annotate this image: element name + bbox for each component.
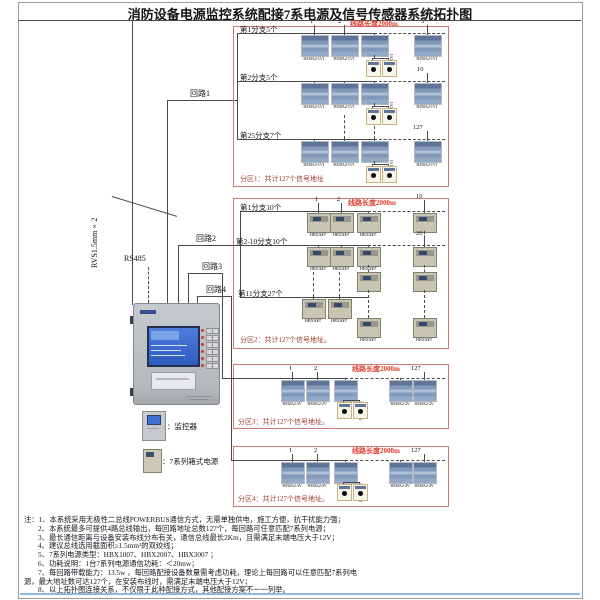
indicator-led	[201, 350, 204, 353]
device-module	[413, 272, 437, 292]
zone-trunk-line	[237, 33, 238, 139]
sensor-module	[353, 484, 368, 501]
device-module-label: HJ30A2-1V1	[297, 56, 331, 61]
device-module-label: HBX3007	[351, 232, 385, 237]
indicator-led	[201, 364, 204, 367]
branch-bus-dashed	[345, 460, 445, 461]
device-module	[357, 318, 381, 338]
device-module	[330, 213, 354, 233]
continuation-dashed-line	[313, 272, 314, 297]
loop1-wire-v	[167, 100, 168, 303]
continuation-dashed-line	[424, 231, 425, 247]
loop3-wire-v1	[188, 273, 189, 303]
device-module	[413, 247, 437, 267]
device-module	[307, 247, 331, 267]
loop3-wire-h1	[188, 273, 222, 274]
address-tick	[318, 203, 319, 211]
sensor-module	[382, 60, 397, 77]
title-underline	[18, 20, 581, 21]
branch-bus-dashed	[368, 245, 445, 246]
branch-bus-dashed	[374, 81, 445, 82]
device-module	[302, 299, 326, 319]
loop4-wire-h1	[197, 296, 231, 297]
device-module	[414, 141, 442, 163]
legend-monitor-screen	[147, 415, 161, 425]
address-tick	[424, 200, 425, 211]
printer-slot	[156, 378, 189, 380]
loop3-label: 回路3	[202, 261, 222, 272]
device-module	[414, 83, 442, 105]
keypad-button	[212, 342, 219, 348]
loop4-wire-v2	[231, 296, 232, 460]
device-module-label: HJ30A2-1V1	[410, 104, 444, 109]
sensor-module	[353, 402, 368, 419]
continuation-dashed-line	[424, 265, 425, 272]
device-module	[328, 299, 352, 319]
device-module-label: HJ30A2-1V1	[327, 104, 361, 109]
device-module	[413, 462, 437, 484]
sensor-branch-line	[372, 58, 389, 59]
device-module-label: HJ30A2-1V1	[297, 104, 331, 109]
sensor-module	[382, 108, 397, 125]
address-tick	[427, 131, 428, 139]
loop1-wire-h	[167, 100, 237, 101]
sensor-branch-line	[343, 482, 360, 483]
indicator-led	[201, 329, 204, 332]
rs485-label: RS485	[124, 254, 146, 263]
address-tick	[427, 25, 428, 33]
device-module	[301, 35, 329, 57]
line-length-label: 线路长度2000m	[352, 446, 400, 456]
device-module	[357, 247, 381, 267]
continuation-dashed-line	[368, 265, 369, 272]
lcd-text-line	[151, 350, 181, 351]
address-number: 1	[289, 447, 292, 454]
branch-label: 第2-10分支10个	[236, 236, 287, 247]
continuation-dashed-line	[368, 290, 369, 318]
zone-trunk-line	[240, 211, 241, 297]
branch-bus-dashed	[374, 139, 445, 140]
address-number: 1	[315, 196, 318, 203]
nameplate-text	[186, 396, 212, 397]
lcd-text-line	[151, 345, 187, 346]
device-module-label: HJ30A2-1V1	[410, 56, 444, 61]
address-number: 10	[417, 66, 424, 73]
rs485-wire	[148, 267, 149, 303]
branch-bus-dashed	[374, 33, 445, 34]
device-module	[361, 83, 389, 105]
address-number: 10	[416, 193, 423, 200]
zone-footer-note: 分区3：共计127个信号地址。	[238, 417, 329, 427]
device-module	[306, 380, 330, 402]
device-module	[334, 380, 358, 402]
keypad-button	[212, 349, 219, 355]
bottom-rule	[20, 593, 580, 595]
notes-section: 注：1、本系统采用无极性二总线POWERBUS通信方式，无需单独供电，施工方便，…	[24, 516, 580, 595]
continuation-dashed-line	[344, 115, 345, 139]
device-module-label: HBX3007	[322, 318, 356, 323]
device-module	[281, 462, 305, 484]
address-number: 1	[289, 365, 292, 372]
address-number: 2	[337, 196, 340, 203]
sensor-module	[366, 166, 381, 183]
device-module	[301, 141, 329, 163]
continuation-dashed-line	[339, 272, 340, 297]
address-number: 20	[416, 230, 423, 237]
sensor-module	[382, 166, 397, 183]
sensor-module	[337, 484, 352, 501]
device-module-label: HJ30A2-2V	[407, 401, 441, 406]
device-module	[414, 35, 442, 57]
legend-power-label: ：7系列箱式电源	[162, 456, 218, 467]
line-length-label: 线路长度2000m	[352, 364, 400, 374]
sensor-module	[337, 402, 352, 419]
device-module	[361, 35, 389, 57]
cabinet-hinge	[130, 388, 133, 396]
sensor-branch-line	[372, 164, 389, 165]
branch-label: 第2分支5个	[240, 72, 278, 83]
lcd-content	[151, 331, 179, 340]
branch-bus-dashed	[368, 211, 445, 212]
branch-label: 第1分支5个	[240, 24, 278, 35]
device-module	[301, 83, 329, 105]
legend-monitor-line	[147, 428, 159, 429]
keypad-button	[212, 356, 219, 362]
device-module	[331, 141, 359, 163]
device-module	[330, 247, 354, 267]
keypad-button	[212, 335, 219, 341]
device-module	[281, 380, 305, 402]
loop2-wire-v	[178, 245, 179, 303]
device-module	[361, 141, 389, 163]
device-module-label: HBX3007	[351, 337, 385, 342]
topology-diagram: 消防设备电源监控系统配接7系电源及信号传感器系统拓扑图 RVS1.5mm×2 回…	[0, 0, 600, 600]
branch-label: 第11分支27个	[238, 288, 283, 299]
continuation-dashed-line	[424, 290, 425, 318]
device-module	[413, 318, 437, 338]
device-module-label: HBX3007	[407, 337, 441, 342]
device-module-label: HJ30A2-1V1	[410, 162, 444, 167]
zone-footer-note: 分区2：共计127个信号地址。	[240, 335, 331, 345]
legend-monitor-label: ：监控器	[167, 421, 197, 432]
keypad-button	[212, 328, 219, 334]
device-module-label: HJ30A2-1V1	[327, 162, 361, 167]
legend-power-screen	[146, 452, 154, 457]
address-number: 127	[411, 365, 421, 372]
branch-bus-dashed	[345, 378, 445, 379]
device-module	[389, 380, 413, 402]
branch-bus	[233, 378, 345, 379]
lcd-text-line	[151, 355, 185, 356]
device-module-label: HJ30A2-2V	[300, 401, 334, 406]
continuation-dashed-line	[374, 126, 375, 139]
address-number: 2	[338, 18, 341, 25]
indicator-led	[201, 343, 204, 346]
address-number: 127	[411, 447, 421, 454]
address-tick	[427, 73, 428, 81]
device-module	[357, 213, 381, 233]
sensor-module	[366, 108, 381, 125]
device-module	[331, 83, 359, 105]
loop4-label: 回路4	[206, 284, 226, 295]
address-tick	[341, 203, 342, 211]
zone-footer-note: 分区1：共计127个信号地址	[240, 174, 324, 184]
line-length-label: 线路长度2000m	[350, 19, 398, 29]
address-number: 1	[310, 18, 313, 25]
controller-printer	[151, 372, 196, 390]
address-number: 2	[314, 447, 317, 454]
device-module	[306, 462, 330, 484]
indicator-led	[201, 357, 204, 360]
address-number: 127	[413, 124, 423, 131]
address-tick	[344, 25, 345, 33]
branch-label: 第25分支7个	[240, 130, 281, 141]
device-module	[334, 462, 358, 484]
device-module-label: HJ30A2-1V1	[327, 56, 361, 61]
brand-logo	[140, 310, 156, 314]
sensor-module	[366, 60, 381, 77]
loop2-label: 回路2	[196, 233, 216, 244]
device-module-label: HJ30A2-4V	[300, 483, 334, 488]
keypad-button	[212, 363, 219, 369]
device-module	[389, 462, 413, 484]
loop4-wire-v1	[197, 296, 198, 303]
nameplate-text	[190, 399, 208, 400]
loop1-label: 回路1	[190, 88, 210, 99]
device-module-label: HJ30A2-4V	[407, 483, 441, 488]
address-tick	[314, 25, 315, 33]
address-number: 2	[314, 365, 317, 372]
loop2-wire-h	[178, 245, 233, 246]
sensor-branch-line	[343, 400, 360, 401]
device-module-label: HJ30A2-1V1	[297, 162, 331, 167]
device-module	[413, 380, 437, 402]
line-length-label: 线路长度2000m	[348, 198, 396, 208]
device-module	[307, 213, 331, 233]
branch-bus	[233, 460, 345, 461]
zone-footer-note: 分区4：共计127个信号地址。	[238, 494, 329, 504]
indicator-led	[201, 336, 204, 339]
branch-label: 第1分支10个	[240, 202, 281, 213]
sensor-branch-line	[372, 106, 389, 107]
device-module	[331, 35, 359, 57]
address-number: 5	[421, 18, 424, 25]
riser-wire-label: RVS1.5mm×2	[90, 138, 99, 268]
cabinet-hinge	[130, 316, 133, 324]
device-module	[357, 272, 381, 292]
